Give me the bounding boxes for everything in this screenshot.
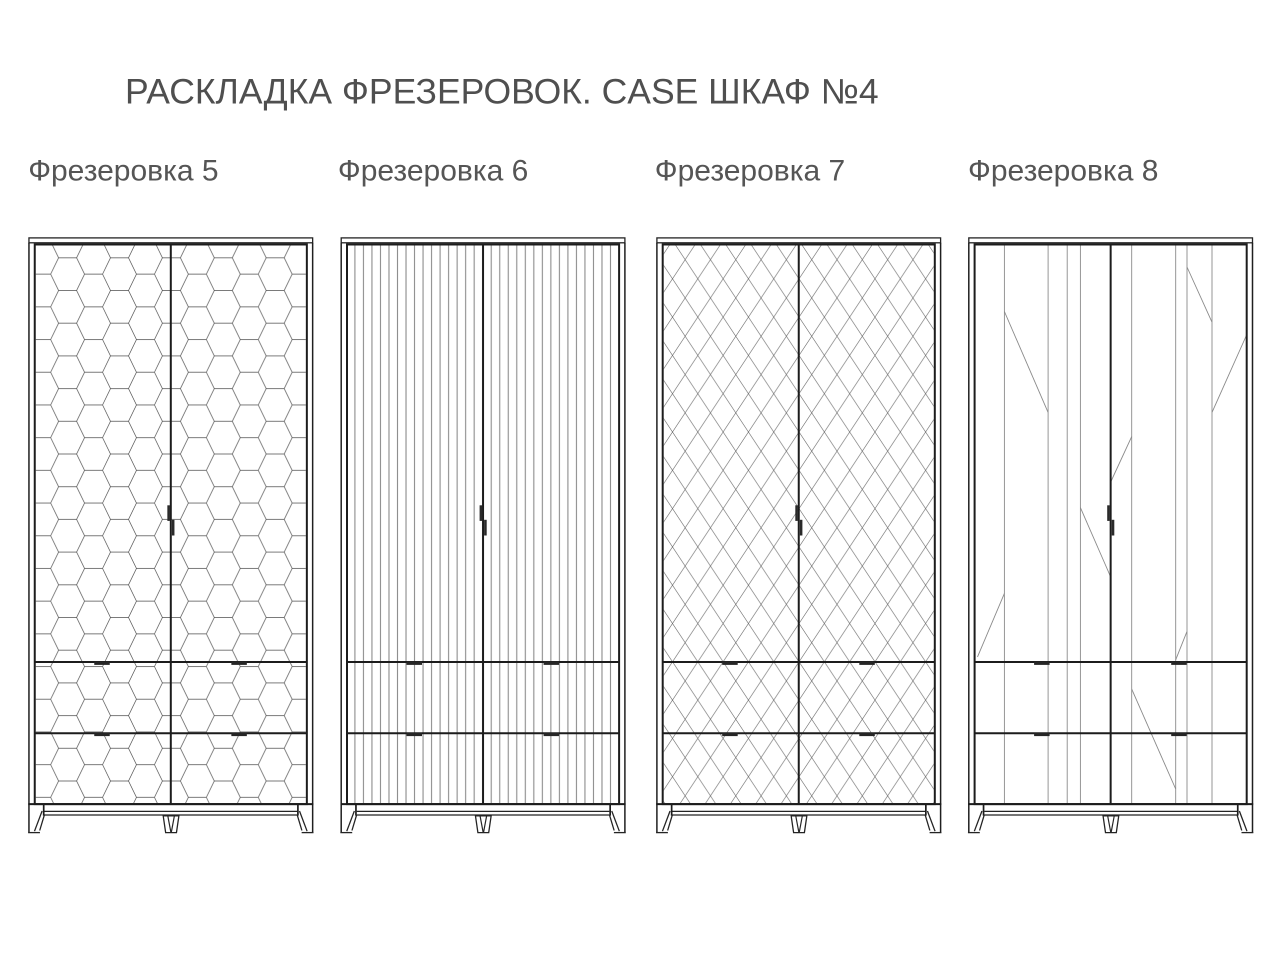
svg-text:Фрезеровка 7: Фрезеровка 7 bbox=[655, 154, 845, 187]
svg-text:Фрезеровка 8: Фрезеровка 8 bbox=[968, 154, 1158, 187]
svg-text:Фрезеровка 5: Фрезеровка 5 bbox=[28, 154, 218, 187]
svg-text:РАСКЛАДКА ФРЕЗЕРОВОК. CASE ШКА: РАСКЛАДКА ФРЕЗЕРОВОК. CASE ШКАФ №4 bbox=[125, 72, 879, 112]
svg-text:Фрезеровка 6: Фрезеровка 6 bbox=[338, 154, 528, 187]
